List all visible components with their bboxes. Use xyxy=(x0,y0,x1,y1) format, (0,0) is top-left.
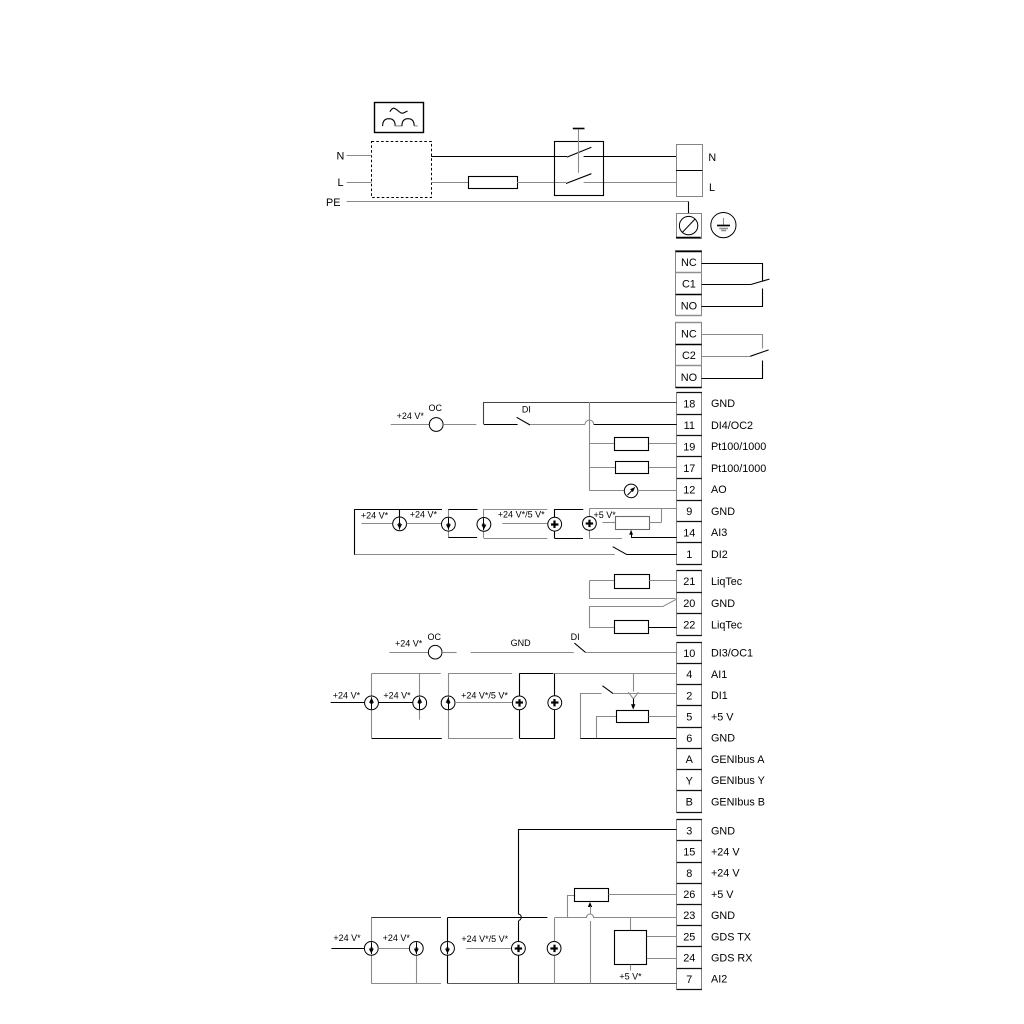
svg-text:+24 V*/5 V*: +24 V*/5 V* xyxy=(461,934,508,944)
svg-text:+24 V*: +24 V* xyxy=(395,639,423,649)
svg-text:GND: GND xyxy=(711,910,735,922)
svg-text:L: L xyxy=(338,177,344,189)
svg-text:10: 10 xyxy=(683,648,695,660)
svg-text:GND: GND xyxy=(711,598,735,610)
svg-text:+24 V*/5 V*: +24 V*/5 V* xyxy=(498,509,545,519)
svg-text:6: 6 xyxy=(686,733,692,745)
svg-text:7: 7 xyxy=(686,974,692,986)
svg-text:DI2: DI2 xyxy=(711,549,728,561)
svg-text:+24 V*: +24 V* xyxy=(383,691,411,701)
svg-text:AI2: AI2 xyxy=(711,974,727,986)
svg-text:1: 1 xyxy=(686,549,692,561)
svg-text:DI: DI xyxy=(522,404,531,414)
svg-text:+5 V*: +5 V* xyxy=(619,972,642,982)
svg-text:21: 21 xyxy=(683,576,695,588)
svg-text:LiqTec: LiqTec xyxy=(711,620,743,632)
svg-text:AI3: AI3 xyxy=(711,527,727,539)
svg-text:GDS RX: GDS RX xyxy=(711,953,752,965)
svg-text:AO: AO xyxy=(711,484,727,496)
svg-text:2: 2 xyxy=(686,690,692,702)
svg-text:+24 V*: +24 V* xyxy=(383,933,411,943)
svg-text:17: 17 xyxy=(683,463,695,475)
svg-text:19: 19 xyxy=(683,441,695,453)
svg-text:NC: NC xyxy=(681,257,697,269)
svg-text:GDS TX: GDS TX xyxy=(711,931,751,943)
svg-text:DI1: DI1 xyxy=(711,690,728,702)
svg-text:Pt100/1000: Pt100/1000 xyxy=(711,441,766,453)
svg-text:GND: GND xyxy=(711,825,735,837)
svg-text:24: 24 xyxy=(683,953,695,965)
svg-text:18: 18 xyxy=(683,398,695,410)
svg-text:PE: PE xyxy=(326,197,340,209)
svg-text:+24 V: +24 V xyxy=(711,847,740,859)
svg-text:+24 V*: +24 V* xyxy=(361,510,389,520)
svg-text:GND: GND xyxy=(711,506,735,518)
svg-text:9: 9 xyxy=(686,506,692,518)
svg-text:AI1: AI1 xyxy=(711,669,727,681)
svg-text:GND: GND xyxy=(711,398,735,410)
svg-text:25: 25 xyxy=(683,931,695,943)
svg-text:11: 11 xyxy=(684,420,695,432)
svg-text:NO: NO xyxy=(681,372,697,384)
svg-text:8: 8 xyxy=(686,868,692,880)
svg-text:+24 V*: +24 V* xyxy=(410,510,438,520)
svg-text:GENIbus Y: GENIbus Y xyxy=(711,775,765,787)
svg-text:+24 V*/5 V*: +24 V*/5 V* xyxy=(461,691,508,701)
svg-text:15: 15 xyxy=(683,847,695,859)
svg-text:Y: Y xyxy=(686,775,694,787)
svg-text:DI4/OC2: DI4/OC2 xyxy=(711,420,753,432)
svg-text:C1: C1 xyxy=(682,279,696,291)
svg-text:Pt100/1000: Pt100/1000 xyxy=(711,463,766,475)
svg-text:GND: GND xyxy=(711,733,735,745)
svg-text:+24 V*: +24 V* xyxy=(333,933,361,943)
svg-text:12: 12 xyxy=(683,484,695,496)
svg-text:GENIbus B: GENIbus B xyxy=(711,797,765,809)
svg-text:3: 3 xyxy=(686,825,692,837)
svg-text:GENIbus A: GENIbus A xyxy=(711,754,765,766)
svg-text:4: 4 xyxy=(686,669,692,681)
svg-text:+5 V: +5 V xyxy=(711,712,734,724)
svg-text:B: B xyxy=(686,797,693,809)
svg-text:23: 23 xyxy=(683,910,695,922)
svg-text:GND: GND xyxy=(511,638,531,648)
svg-text:C2: C2 xyxy=(682,350,696,362)
svg-text:5: 5 xyxy=(686,712,692,724)
svg-text:DI: DI xyxy=(571,632,580,642)
svg-text:N: N xyxy=(337,151,345,163)
svg-text:22: 22 xyxy=(683,620,695,632)
svg-text:L: L xyxy=(709,182,715,194)
svg-text:NO: NO xyxy=(681,300,697,312)
svg-text:20: 20 xyxy=(683,598,695,610)
svg-text:N: N xyxy=(708,152,716,164)
svg-text:+5 V: +5 V xyxy=(711,889,734,901)
svg-text:LiqTec: LiqTec xyxy=(711,576,743,588)
svg-text:26: 26 xyxy=(683,889,695,901)
svg-text:+24 V: +24 V xyxy=(711,868,740,880)
svg-text:NC: NC xyxy=(681,328,697,340)
svg-text:14: 14 xyxy=(683,527,695,539)
svg-text:+24 V*: +24 V* xyxy=(397,411,425,421)
svg-text:DI3/OC1: DI3/OC1 xyxy=(711,648,753,660)
svg-text:OC: OC xyxy=(428,632,442,642)
svg-text:+5 V*: +5 V* xyxy=(594,510,617,520)
svg-text:A: A xyxy=(686,754,694,766)
svg-text:+24 V*: +24 V* xyxy=(333,691,361,701)
svg-text:OC: OC xyxy=(429,403,443,413)
